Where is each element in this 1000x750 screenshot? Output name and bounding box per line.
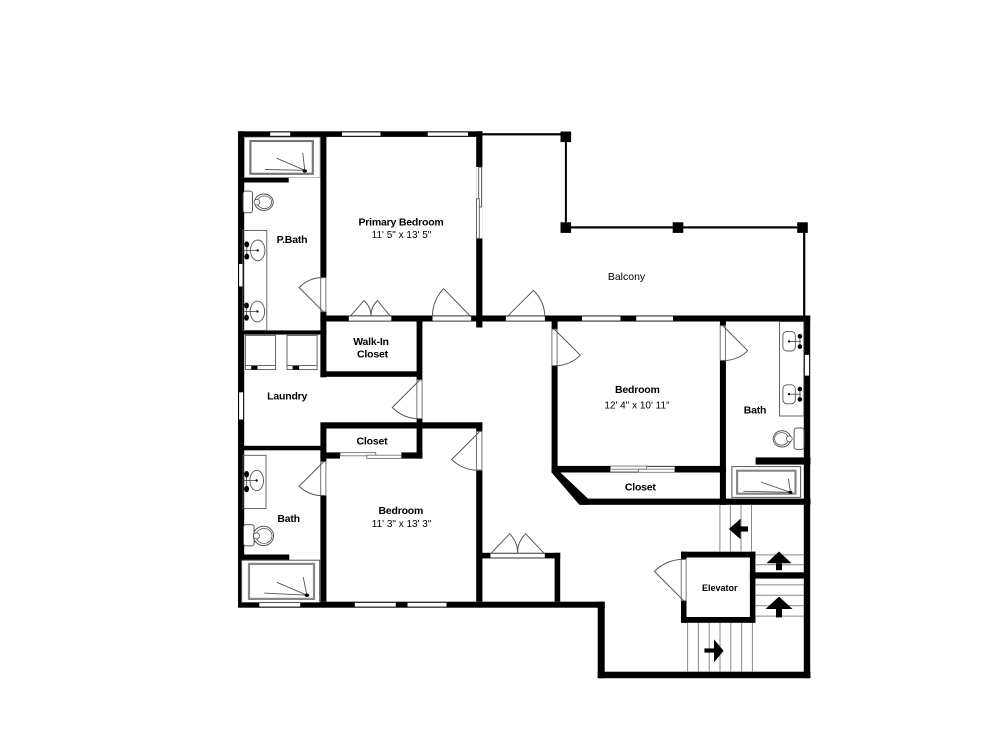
svg-text:Closet: Closet: [625, 482, 657, 494]
svg-text:12' 4" x 10' 11": 12' 4" x 10' 11": [604, 400, 670, 411]
svg-text:Elevator: Elevator: [702, 583, 738, 593]
svg-text:11' 5" x 13' 5": 11' 5" x 13' 5": [372, 230, 432, 241]
svg-text:Closet: Closet: [357, 436, 389, 448]
svg-text:Bedroom: Bedroom: [378, 505, 423, 517]
svg-text:Laundry: Laundry: [267, 391, 307, 403]
svg-text:Bath: Bath: [744, 404, 767, 416]
svg-text:Primary Bedroom: Primary Bedroom: [358, 216, 443, 228]
svg-text:Bedroom: Bedroom: [615, 384, 660, 396]
svg-text:Walk-In: Walk-In: [353, 336, 389, 348]
svg-text:P.Bath: P.Bath: [277, 234, 308, 246]
svg-text:Bath: Bath: [277, 513, 300, 525]
svg-text:Balcony: Balcony: [608, 271, 646, 283]
svg-text:11' 3" x 13' 3": 11' 3" x 13' 3": [372, 519, 432, 530]
svg-text:Closet: Closet: [357, 348, 389, 360]
